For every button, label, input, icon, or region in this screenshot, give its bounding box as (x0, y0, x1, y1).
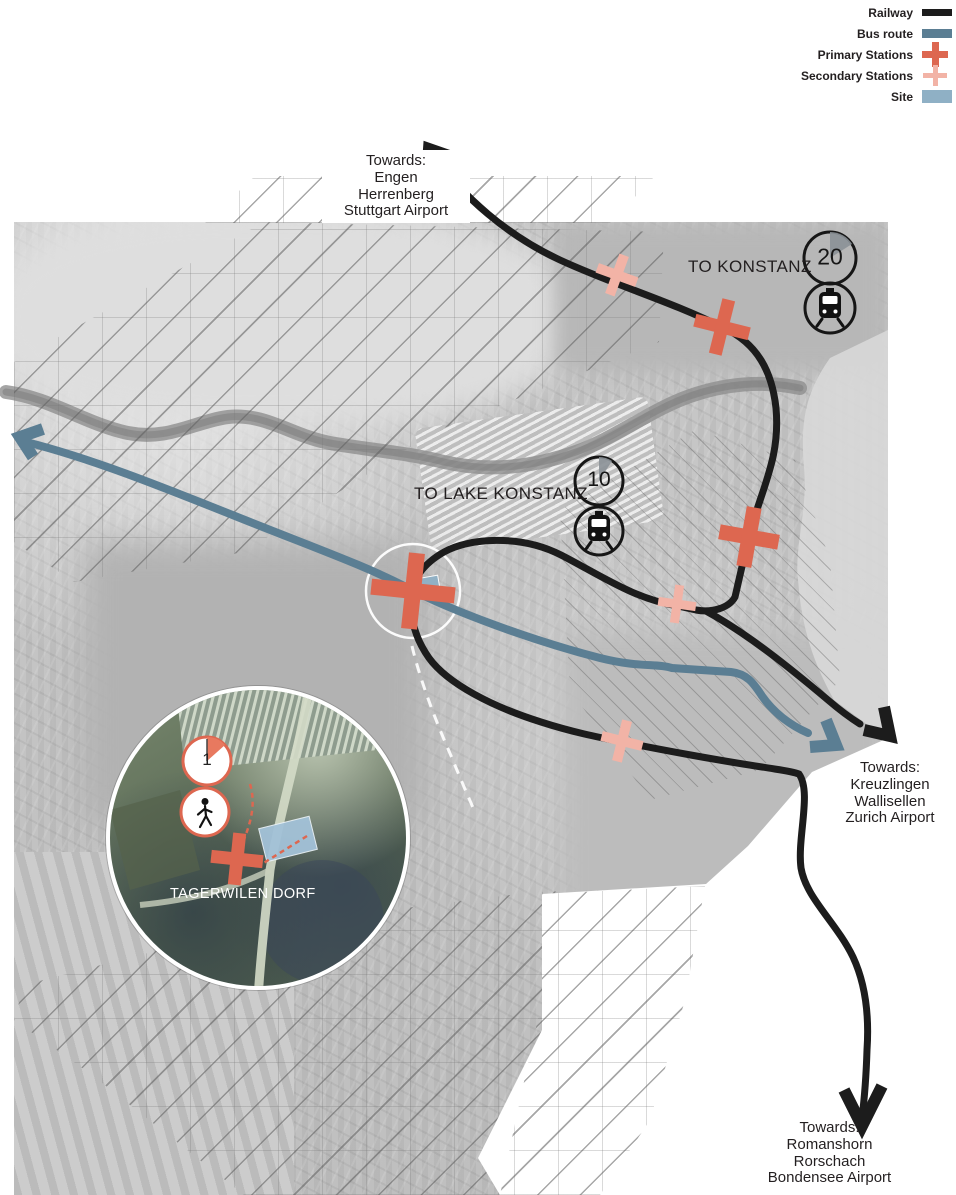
legend-row-secondary: Secondary Stations (768, 65, 954, 86)
routes-layer (0, 0, 956, 1195)
legend-row-site: Site (768, 86, 954, 107)
secondary-station-south (597, 716, 648, 767)
site-marker-inset (259, 816, 318, 862)
railway-line-swatch (922, 2, 954, 23)
label-to-konstanz: TO KONSTANZ (688, 257, 812, 277)
legend-row-railway: Railway (768, 2, 954, 23)
destination-line: Herrenberg (328, 187, 464, 204)
legend: Railway Bus route Primary Stations Secon… (768, 2, 954, 107)
destination-line: Wallisellen (830, 794, 950, 811)
travel-minutes-konstanz: 20 (817, 244, 843, 271)
destination-line: Kreuzlingen (830, 777, 950, 794)
primary-station-east (714, 502, 784, 572)
label-to-lake-konstanz: TO LAKE KONSTANZ (414, 484, 588, 504)
legend-label: Primary Stations (768, 48, 913, 62)
destination-east-title: Towards: (830, 760, 950, 777)
legend-row-bus: Bus route (768, 23, 954, 44)
secondary-station-east (656, 583, 699, 626)
bus-arrow-southeast (810, 720, 836, 747)
destination-line: Zurich Airport (830, 810, 950, 827)
destination-east: Towards: Kreuzlingen Wallisellen Zurich … (830, 760, 950, 827)
inset-place-label: TAGERWILEN DORF (170, 886, 370, 902)
destination-line: Rorschach (752, 1154, 907, 1171)
secondary-station-swatch (922, 65, 954, 86)
inset-walk-minutes: 1 (202, 750, 211, 770)
legend-label: Bus route (768, 27, 913, 41)
primary-station-konstanz (688, 293, 756, 361)
destination-south: Towards: Romanshorn Rorschach Bondensee … (752, 1120, 907, 1187)
legend-label: Secondary Stations (768, 69, 913, 83)
inset-graphics (110, 690, 410, 990)
train-icon (817, 288, 843, 326)
dark-field (260, 860, 384, 984)
travel-minutes-lake: 10 (587, 468, 610, 492)
site-swatch (922, 86, 954, 107)
railway-arrow-southeast (864, 707, 890, 736)
legend-label: Site (768, 90, 913, 104)
train-icon (586, 511, 612, 549)
destination-line: Stuttgart Airport (328, 203, 464, 220)
destination-line: Bondensee Airport (752, 1170, 907, 1187)
destination-south-title: Towards: (752, 1120, 907, 1137)
railway-main-line (411, 152, 868, 1118)
destination-north-title: Towards: (328, 153, 464, 170)
legend-label: Railway (768, 6, 913, 20)
destination-line: Romanshorn (752, 1137, 907, 1154)
railway-branch-kreuzlingen (706, 611, 860, 724)
primary-station-tagerwilen (367, 549, 458, 633)
primary-station-swatch (922, 44, 954, 65)
walk-path-dashed (243, 784, 253, 842)
legend-row-primary: Primary Stations (768, 44, 954, 65)
destination-line: Engen (328, 170, 464, 187)
tagerwilen-inset-map: 1 TAGERWILEN DORF (106, 686, 410, 990)
transit-map-canvas: 1 TAGERWILEN DORF Towards: Engen Herrenb… (0, 0, 956, 1195)
bus-route-swatch (922, 23, 954, 44)
destination-north: Towards: Engen Herrenberg Stuttgart Airp… (322, 150, 470, 223)
